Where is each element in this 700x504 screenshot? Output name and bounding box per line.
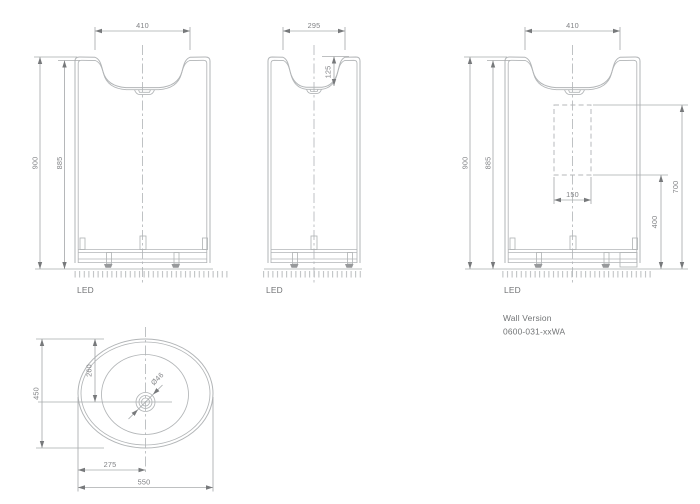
plan-dim-drain-diameter-value: Ø46 xyxy=(149,370,166,387)
side-floor: LED xyxy=(262,269,364,295)
wall-dim-height-outer-value: 900 xyxy=(461,157,470,170)
wall-basin-outline xyxy=(505,45,640,283)
side-basin-outline xyxy=(268,45,360,283)
front-dim-top-width-value: 410 xyxy=(136,21,149,30)
side-dim-basin-depth-value: 125 xyxy=(324,66,333,79)
wall-dim-top-width-value: 410 xyxy=(566,21,579,30)
wall-dim-bracket-top-value: 700 xyxy=(671,181,680,194)
wall-bottom-bracket xyxy=(620,253,637,268)
wall-floor: LED xyxy=(465,269,688,295)
wall-dim-height-inner-value: 885 xyxy=(484,157,493,170)
plan-view: Ø46 450 260 275 550 xyxy=(32,327,214,492)
wall-dim-height-inner: 885 xyxy=(484,61,511,270)
plan-drain: Ø46 xyxy=(129,370,166,419)
washbasin-technical-drawing: LED 410 900 885 xyxy=(0,0,700,504)
wall-floor-hatch xyxy=(500,271,652,279)
plan-dim-drain-from-back: 260 xyxy=(85,339,96,402)
front-basin-outline xyxy=(75,45,210,283)
front-dim-height-outer: 900 xyxy=(31,57,78,269)
front-dim-height-inner-value: 885 xyxy=(55,157,64,170)
plan-dim-depth-value: 450 xyxy=(32,387,41,400)
front-floor: LED xyxy=(35,269,228,295)
side-dim-top-width-value: 295 xyxy=(308,21,321,30)
wall-floor-label: LED xyxy=(504,285,521,295)
side-floor-hatch xyxy=(262,271,364,279)
wall-dim-bracket-width-value: 150 xyxy=(566,190,579,199)
plan-dim-depth: 450 xyxy=(32,339,105,448)
plan-dim-drain-from-left-value: 275 xyxy=(104,460,117,469)
wall-version-caption-line2: 0600-031-xxWA xyxy=(503,327,566,337)
front-floor-hatch xyxy=(72,271,228,279)
technical-drawing-page: LED 410 900 885 xyxy=(0,0,700,504)
wall-version-view: LED 410 900 885 150 400 xyxy=(461,21,689,337)
front-floor-label: LED xyxy=(77,285,94,295)
wall-dim-bracket-bottom-value: 400 xyxy=(650,216,659,229)
plan-dim-drain-from-back-value: 260 xyxy=(85,364,94,377)
wall-version-caption: Wall Version 0600-031-xxWA xyxy=(503,313,566,337)
side-floor-label: LED xyxy=(266,285,283,295)
front-dim-height-inner: 885 xyxy=(55,61,80,270)
plan-dim-width-value: 550 xyxy=(138,478,151,487)
plan-basin-outline xyxy=(38,327,213,475)
front-dim-height-outer-value: 900 xyxy=(31,157,40,170)
wall-version-caption-line1: Wall Version xyxy=(503,313,552,323)
front-view: LED 410 900 885 xyxy=(31,21,229,295)
side-view: LED 295 125 xyxy=(262,21,364,295)
